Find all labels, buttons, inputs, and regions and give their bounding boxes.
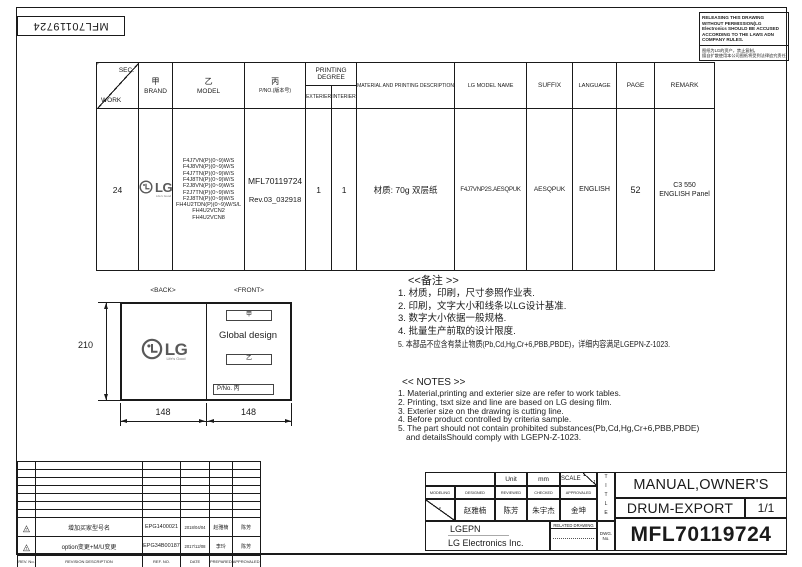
- arrow-right-icon: [285, 419, 291, 423]
- top-left-part-number-box: MFL70119724: [17, 16, 125, 36]
- lg-wordmark: LG: [155, 182, 172, 194]
- related-drawing-dotted-line: [553, 538, 594, 539]
- approvaled-name: 金坤: [560, 499, 597, 521]
- remark-line2: ENGLISH Panel: [659, 191, 710, 198]
- exterier-header: EXTERIER: [306, 86, 332, 109]
- model-header-cn: 乙: [173, 76, 244, 87]
- model-list: F4J7VN(P)(0~9)W/S F4J8VN(P)(0~9)W/S F4J7…: [173, 109, 245, 271]
- unit-value: mm: [527, 472, 560, 486]
- pno-value: MFL70119724: [248, 176, 302, 186]
- revision-approved: 陈芳: [232, 518, 260, 537]
- revision-mark-icon: △1: [23, 543, 30, 552]
- dim-line-height: [106, 303, 107, 400]
- scale-fraction: 1 1: [583, 473, 596, 485]
- brand-cell: LG Life's Good: [139, 109, 173, 271]
- signature-mark: *: [439, 507, 441, 513]
- dim-ext-bottom: [98, 400, 120, 401]
- revision-row: △2 增加买家型号名 EPG1400021 2018/04/04 赵雅楠 陈芳: [18, 518, 261, 537]
- revision-hdr-ref-no: REF. NO.: [143, 556, 181, 567]
- drawing-title-line1: MANUAL,OWNER'S: [615, 472, 787, 498]
- material-value: 材质: 70g 双层纸: [357, 109, 455, 271]
- sec-label: SEC.: [119, 67, 134, 74]
- pno-header: 丙 P/NO.(版本号): [245, 63, 306, 109]
- dwg-no-label-cell: DWG. No.: [597, 521, 615, 551]
- lg-model-name-value: F4J7VNP2S.AESQPUK: [455, 109, 527, 271]
- arrow-left-icon: [121, 419, 127, 423]
- company-cell: LGEPN LG Electronics Inc.: [425, 521, 550, 551]
- revision-mark-number: 1: [25, 544, 27, 553]
- booklet-diagram: LG Life's Good 甲 Global design 乙 P/No. 丙: [120, 302, 292, 401]
- model-item: F4J8VN(P)(0~9)W/S: [173, 164, 244, 170]
- work-label: WORK: [101, 97, 121, 104]
- title-vertical-label: TITLE: [603, 474, 609, 519]
- lg-logo-large: LG Life's Good: [141, 338, 188, 365]
- reviewed-name: 陈芳: [495, 499, 527, 521]
- lg-tagline: Life's Good: [165, 357, 188, 361]
- dim-148-right: 148: [206, 407, 291, 417]
- notes-cn-item: 4. 批量生产前取的设计限度.: [398, 326, 738, 339]
- release-notice-cn: 图纸为LG的资产，禁止复制。 擅自扩散使用本公司图纸将受到法律追究责任: [700, 46, 788, 60]
- language-value: ENGLISH: [573, 109, 617, 271]
- dim-210: 210: [78, 340, 93, 350]
- front-box-pno: P/No. 丙: [213, 384, 274, 395]
- company-full: LG Electronics Inc.: [448, 538, 524, 548]
- brand-header: 甲 BRAND: [139, 63, 173, 109]
- lg-model-name-header: LG MODEL NAME: [455, 63, 527, 109]
- arrow-right-icon: [199, 419, 205, 423]
- reviewed-header: REVIEWED: [495, 486, 527, 499]
- sheet-number: 1/1: [745, 498, 787, 518]
- booklet-front-cover: 甲 Global design 乙 P/No. 丙: [206, 304, 290, 399]
- work-table: SEC. WORK 甲 BRAND 乙 MODEL 丙 P/NO.(版本号) P…: [96, 62, 715, 271]
- dim-ext-top: [98, 302, 120, 303]
- front-global-design: Global design: [206, 330, 290, 341]
- release-notice-en: RELEASING THIS DRAWING WITHOUT PERMISSIO…: [700, 13, 788, 46]
- scale-cell: SCALE 1 1: [560, 472, 597, 486]
- checked-name: 朱宇杰: [527, 499, 560, 521]
- approvaled-header: APPROVALED: [560, 486, 597, 499]
- revision-date: 2018/04/04: [181, 518, 210, 537]
- rev-value: Rev.03_032918: [245, 195, 305, 204]
- remark-line1: C3 550: [673, 182, 696, 189]
- material-header: MATERIAL AND PRINTING DESCRIPTION: [357, 63, 455, 109]
- arrow-left-icon: [208, 419, 214, 423]
- arrow-down-icon: [104, 394, 108, 400]
- modeling-signature: *: [425, 499, 455, 521]
- pno-cell: MFL70119724 Rev.03_032918: [245, 109, 306, 271]
- notes-cn-title: <<备注 >>: [408, 272, 738, 288]
- revision-prepared: 赵雅楠: [210, 518, 233, 537]
- lg-logo: LG Life's Good: [139, 180, 172, 199]
- notes-cn-item: 5. 本部品不应含有禁止物质(Pb,Cd,Hg,Cr+6,PBB,PBDE)，详…: [398, 338, 677, 351]
- model-item: F2J8VN(P)(0~9)W/S: [173, 183, 244, 189]
- suffix-header: SUFFIX: [527, 63, 573, 109]
- back-label: <BACK>: [120, 287, 206, 294]
- revision-row: △1 option变更+M/U变更 EPG34B00187 2017/12/08…: [18, 537, 261, 556]
- brand-header-cn: 甲: [139, 76, 172, 87]
- revision-desc: 增加买家型号名: [36, 518, 143, 537]
- revision-hdr-desc: REVISION DESCRIPTION: [36, 556, 143, 567]
- company-short: LGEPN: [448, 524, 509, 536]
- release-notice-cn-line2: 擅自扩散使用本公司图纸将受到法律追究责任: [702, 53, 786, 58]
- notes-cn-item: 2. 印刷，文字大小和线条以LG设计基准.: [398, 301, 738, 314]
- language-header: LANGUAGE: [573, 63, 617, 109]
- revision-mark-icon: △2: [23, 524, 30, 533]
- notes-cn-item: 3. 数字大小依据一般规格.: [398, 313, 738, 326]
- notes-en-title: << NOTES >>: [402, 377, 758, 388]
- notes-en: << NOTES >> 1. Material,printing and ext…: [398, 377, 758, 442]
- lg-circle-icon: [139, 180, 153, 199]
- front-label: <FRONT>: [206, 287, 292, 294]
- suffix-value: AESQPUK: [527, 109, 573, 271]
- revision-mark-number: 2: [25, 525, 27, 534]
- revision-date: 2017/12/08: [181, 537, 210, 556]
- title-vertical-cell: TITLE: [597, 472, 615, 521]
- work-number: 24: [97, 109, 139, 271]
- designed-header: DESIGNED: [455, 486, 495, 499]
- revision-hdr-rev-no: REV. No.: [18, 556, 36, 567]
- dwg-label-2: No.: [602, 536, 609, 542]
- checked-header: CHECKED: [527, 486, 560, 499]
- interier-header: INTERIER: [332, 86, 357, 109]
- designed-name: 赵雅楠: [455, 499, 495, 521]
- revision-ref-no: EPG1400021: [143, 518, 181, 537]
- scale-numerator: 1: [583, 472, 586, 478]
- release-notice: RELEASING THIS DRAWING WITHOUT PERMISSIO…: [699, 12, 789, 61]
- revision-hdr-date: DATE: [181, 556, 210, 567]
- revision-hdr-prepared: PREPARED: [210, 556, 233, 567]
- front-box-yi: 乙: [226, 354, 272, 365]
- remark-cell: C3 550 ENGLISH Panel: [655, 109, 715, 271]
- dim-ext-right: [291, 403, 292, 426]
- sec-work-header: SEC. WORK: [97, 63, 139, 109]
- notes-cn-item: 1. 材质，印刷，尺寸参照作业表.: [398, 288, 738, 301]
- lg-tagline: Life's Good: [155, 194, 172, 198]
- revision-ref-no: EPG34B00187: [143, 537, 181, 556]
- model-header: 乙 MODEL: [173, 63, 245, 109]
- remark-header: REMARK: [655, 63, 715, 109]
- dim-148-left: 148: [120, 407, 206, 417]
- pno-header-cn: 丙: [245, 76, 305, 87]
- title-block: Unit mm SCALE 1 1 MODELING DESIGNED REVI…: [425, 472, 787, 551]
- modeling-header: MODELING: [425, 486, 455, 499]
- revision-hdr-approved: APPROVALED: [232, 556, 260, 567]
- revision-table: △2 增加买家型号名 EPG1400021 2018/04/04 赵雅楠 陈芳 …: [17, 461, 261, 567]
- dim-line-width: [120, 421, 292, 422]
- related-drawing-cell: RELATED DRAWING: [550, 521, 597, 551]
- notes-en-item: and detailsShould comply with LGEPN-Z-10…: [398, 433, 758, 442]
- brand-header-en: BRAND: [139, 87, 172, 96]
- interier-value: 1: [332, 109, 357, 271]
- model-item: F2J7TN(P)(0~9)W/S: [173, 190, 244, 196]
- top-left-part-number: MFL70119724: [33, 20, 109, 32]
- page-header: PAGE: [617, 63, 655, 109]
- model-item: F4J7TN(P)(0~9)W/S: [173, 171, 244, 177]
- unit-label: Unit: [495, 472, 527, 486]
- drawing-title-line2: DRUM-EXPORT: [615, 498, 745, 518]
- scale-label: SCALE: [561, 476, 581, 482]
- arrow-up-icon: [104, 303, 108, 309]
- exterier-value: 1: [306, 109, 332, 271]
- booklet-back-cover: LG Life's Good: [122, 304, 206, 399]
- title-block-blank: [425, 472, 495, 486]
- drawing-number: MFL70119724: [615, 518, 787, 551]
- front-box-jia: 甲: [226, 310, 272, 321]
- revision-approved: 陈芳: [232, 537, 260, 556]
- lg-wordmark: LG: [165, 342, 188, 357]
- model-item: FH4U2VCN8: [173, 215, 244, 221]
- revision-prepared: 李玲: [210, 537, 233, 556]
- drawing-sheet: MFL70119724 RELEASING THIS DRAWING WITHO…: [0, 0, 802, 567]
- related-drawing-label: RELATED DRAWING: [551, 523, 596, 529]
- revision-header-row: REV. No. REVISION DESCRIPTION REF. NO. D…: [18, 556, 261, 567]
- notes-cn: <<备注 >> 1. 材质，印刷，尺寸参照作业表. 2. 印刷，文字大小和线条以…: [398, 272, 738, 351]
- model-header-en: MODEL: [173, 87, 244, 96]
- revision-desc: option变更+M/U变更: [36, 537, 143, 556]
- pno-header-en: P/NO.(版本号): [245, 87, 305, 96]
- lg-circle-icon: [141, 338, 163, 365]
- page-value: 52: [617, 109, 655, 271]
- printing-degree-header: PRINTING DEGREE: [306, 63, 357, 86]
